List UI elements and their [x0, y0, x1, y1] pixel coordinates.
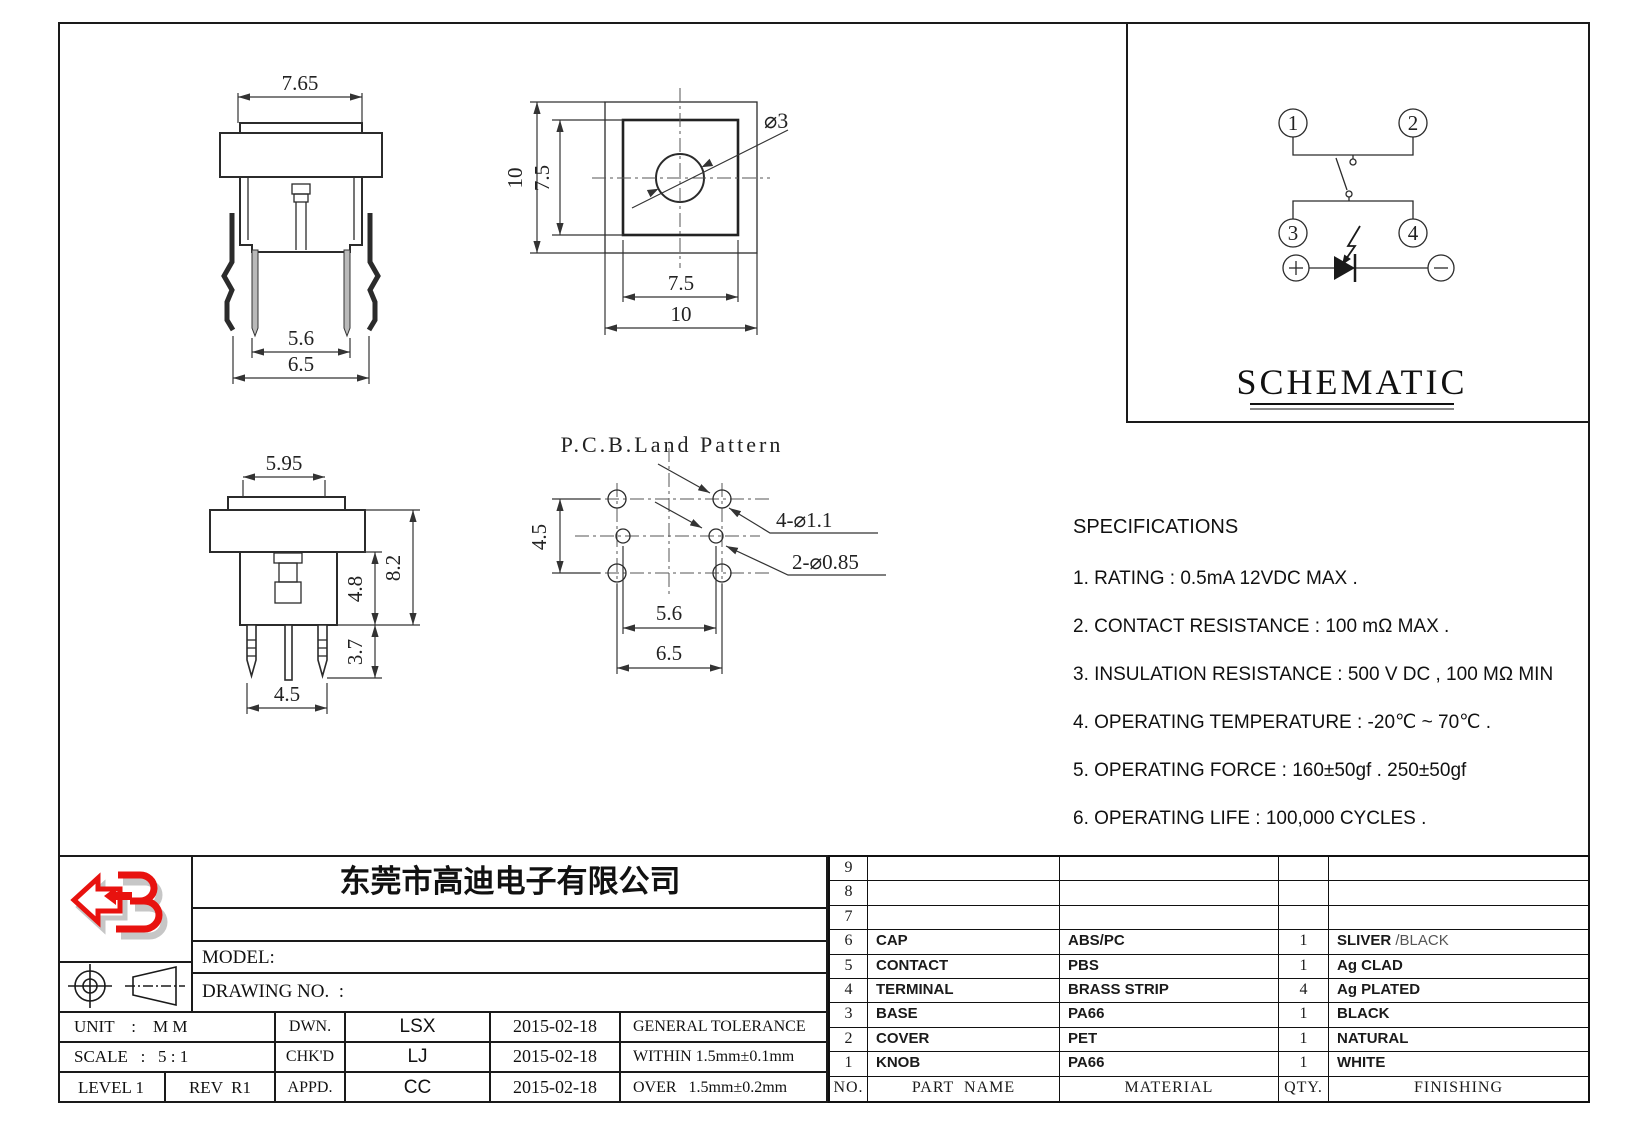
top-view-drawing: 10 7.5 7.5 10 ⌀3 — [480, 55, 810, 345]
dim-side-total: 8.2 — [381, 555, 405, 581]
part-row-no: 2 — [830, 1028, 868, 1052]
drawing-no-row: DRAWING NO. : — [202, 979, 822, 1005]
chk-date-cell: 2015-02-18 — [491, 1042, 619, 1071]
pcb-land-pattern-drawing: P.C.B.Land Pattern 4.5 5.6 — [500, 420, 900, 690]
part-name-cover: COVER — [868, 1028, 1060, 1052]
cap-finishing-alt: /BLACK — [1391, 932, 1449, 949]
pin-2-label: 2 — [1408, 111, 1419, 135]
schematic-circuit: 1 2 3 4 — [1279, 109, 1454, 282]
dim-front-top: 7.65 — [282, 71, 319, 95]
pin-1-label: 1 — [1288, 111, 1299, 135]
appd-date-cell: 2015-02-18 — [491, 1073, 619, 1102]
tolerance-over-cell: OVER 1.5mm±0.2mm — [633, 1073, 828, 1102]
svg-text:SCHEMATIC: SCHEMATIC — [1236, 362, 1467, 402]
part-row-no: 9 — [830, 857, 868, 881]
cap-finishing-cell: SLIVER /BLACK — [1329, 930, 1588, 954]
scale-cell: SCALE : 5 : 1 — [74, 1042, 274, 1071]
col-header-part-name: PART NAME — [868, 1077, 1060, 1101]
schematic-title: SCHEMATIC — [1236, 362, 1467, 409]
dim-front-outer: 6.5 — [288, 352, 314, 376]
spec-operating-force: 5. OPERATING FORCE : 160±50gf . 250±50gf — [1073, 747, 1595, 795]
dim-top-left-inner: 7.5 — [530, 165, 554, 191]
part-row-no: 8 — [830, 881, 868, 905]
dim-side-span: 4.5 — [274, 682, 300, 706]
spec-operating-life: 6. OPERATING LIFE : 100,000 CYCLES . — [1073, 795, 1595, 843]
appd-value-cell: CC — [346, 1073, 489, 1102]
side-view-drawing: 5.95 8.2 4.8 3.7 4.5 — [185, 430, 435, 725]
projection-symbols — [58, 962, 192, 1011]
model-row: MODEL: — [202, 945, 822, 970]
spec-rating: 1. RATING : 0.5mA 12VDC MAX . — [1073, 555, 1595, 603]
corner-holes-label: 4-⌀1.1 — [776, 508, 832, 532]
part-row-no: 4 — [830, 979, 868, 1003]
dwn-label-cell: DWN. — [276, 1012, 344, 1041]
rev-cell: REV R1 — [166, 1073, 274, 1102]
side-view-body — [210, 497, 365, 680]
first-angle-projection-icon — [68, 964, 112, 1008]
pin-3-label: 3 — [1288, 221, 1299, 245]
dim-side-top: 5.95 — [266, 451, 303, 475]
col-header-finishing: FINISHING — [1329, 1077, 1588, 1101]
front-view-dimensions: 7.65 5.6 6.5 — [233, 71, 369, 384]
dim-top-bottom: 10 — [671, 302, 692, 326]
cone-projection-icon — [125, 967, 185, 1005]
chk-value-cell: LJ — [346, 1042, 489, 1071]
dwn-date-cell: 2015-02-18 — [491, 1012, 619, 1041]
dim-top-left: 10 — [503, 168, 527, 189]
center-holes-label: 2-⌀0.85 — [792, 550, 859, 574]
dim-top-bottom-inner: 7.5 — [668, 271, 694, 295]
col-header-qty: QTY. — [1279, 1077, 1329, 1101]
top-view-body — [592, 88, 770, 268]
part-name-contact: CONTACT — [868, 955, 1060, 979]
dwn-value-cell: LSX — [346, 1012, 489, 1041]
dim-pcb-outer: 6.5 — [656, 641, 682, 665]
pin-4-label: 4 — [1408, 221, 1419, 245]
part-row-no: 5 — [830, 955, 868, 979]
spec-insulation-resistance: 3. INSULATION RESISTANCE : 500 V DC , 10… — [1073, 651, 1595, 699]
part-name-cap: CAP — [868, 930, 1060, 954]
dim-front-inner: 5.6 — [288, 326, 314, 350]
parts-table: 9 8 7 6 CAP ABS/PC 1 SLIVER /BLACK 5 CON… — [828, 855, 1590, 1103]
part-name-base: BASE — [868, 1003, 1060, 1027]
front-view-body — [220, 123, 382, 336]
hole-diameter-label: ⌀3 — [764, 108, 788, 133]
part-row-no: 1 — [830, 1052, 868, 1076]
tolerance-within-cell: WITHIN 1.5mm±0.1mm — [633, 1042, 828, 1071]
pcb-dimensions: 4.5 5.6 6.5 4-⌀1.1 2-⌀0.85 — [527, 464, 886, 674]
side-view-dimensions: 5.95 8.2 4.8 3.7 4.5 — [243, 451, 420, 714]
dim-side-lead: 3.7 — [343, 639, 367, 665]
spec-operating-temperature: 4. OPERATING TEMPERATURE : -20℃ ~ 70℃ . — [1073, 699, 1595, 747]
top-view-dimensions: 10 7.5 7.5 10 ⌀3 — [503, 102, 788, 335]
specifications: SPECIFICATIONS 1. RATING : 0.5mA 12VDC M… — [1073, 516, 1595, 843]
engineering-drawing-page: 7.65 5.6 6.5 10 — [0, 0, 1651, 1124]
specifications-title: SPECIFICATIONS — [1073, 516, 1595, 539]
spec-contact-resistance: 2. CONTACT RESISTANCE : 100 mΩ MAX . — [1073, 603, 1595, 651]
chk-label-cell: CHK'D — [276, 1042, 344, 1071]
pcb-pattern-title: P.C.B.Land Pattern — [561, 432, 784, 457]
unit-cell: UNIT : M M — [74, 1012, 274, 1041]
dim-pcb-vertical: 4.5 — [527, 524, 551, 550]
dim-side-body: 4.8 — [343, 576, 367, 602]
appd-label-cell: APPD. — [276, 1073, 344, 1102]
part-row-no: 7 — [830, 906, 868, 930]
col-header-no: NO. — [830, 1077, 868, 1101]
part-name-knob: KNOB — [868, 1052, 1060, 1076]
col-header-material: MATERIAL — [1060, 1077, 1279, 1101]
company-name: 东莞市高迪电子有限公司 — [192, 858, 828, 906]
part-row-no: 3 — [830, 1003, 868, 1027]
front-view-drawing: 7.65 5.6 6.5 — [150, 50, 450, 395]
dim-pcb-inner: 5.6 — [656, 601, 682, 625]
level-cell: LEVEL 1 — [58, 1073, 164, 1102]
part-row-no: 6 — [830, 930, 868, 954]
general-tolerance-cell: GENERAL TOLERANCE — [633, 1012, 828, 1041]
company-logo — [58, 857, 192, 960]
schematic-drawing: 1 2 3 4 SCHEMATIC — [1126, 22, 1590, 423]
drawing-title-row: TITLE : LLLUMINATED TACTILE SWITCH — [202, 912, 822, 938]
part-name-terminal: TERMINAL — [868, 979, 1060, 1003]
